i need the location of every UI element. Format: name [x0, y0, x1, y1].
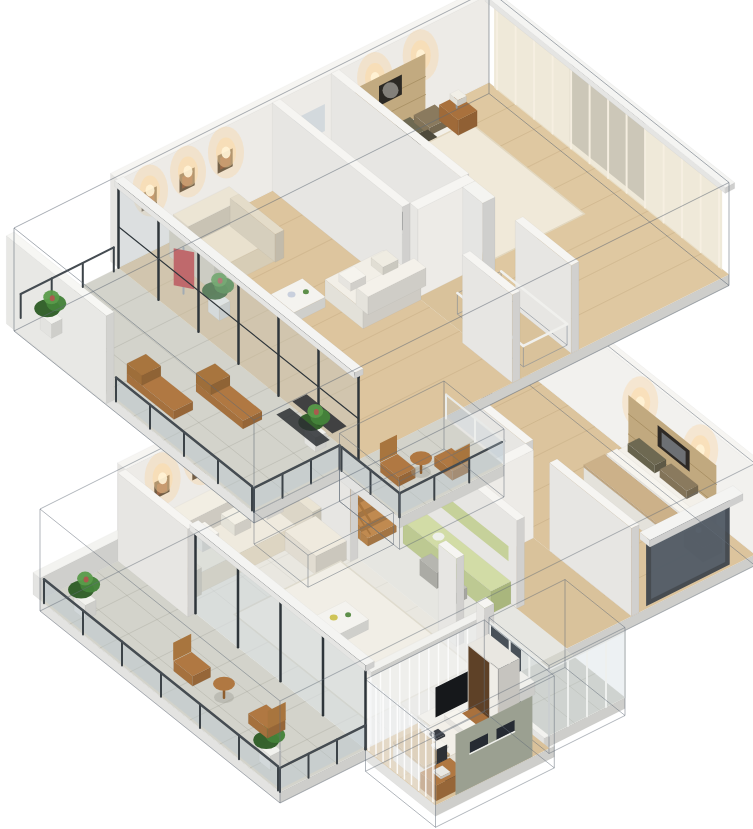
wall-light	[146, 185, 155, 197]
table-deco-plant	[345, 612, 351, 617]
uf-loveseat-arm	[275, 230, 284, 262]
kitchen-sink	[433, 533, 445, 541]
uf-wall-hall-bedroom	[571, 262, 579, 354]
uf-balcony-west-wall	[106, 312, 114, 404]
wall-light	[184, 166, 193, 178]
plant-bloom	[50, 295, 55, 301]
round-table-top	[410, 451, 432, 465]
wall-light	[158, 472, 167, 484]
lf-wall-kitchen-bath	[517, 517, 525, 609]
uf-wall-living-hall	[512, 291, 520, 383]
wall-light	[222, 147, 231, 159]
plant-bloom	[314, 409, 319, 415]
lf-wall-corridor-bedroom	[632, 525, 640, 617]
table-deco-plant	[303, 289, 309, 294]
floorplan-3d-render	[0, 0, 753, 829]
art-palm-motif	[383, 82, 399, 98]
plant-bloom	[84, 577, 89, 583]
round-table-top	[213, 677, 235, 691]
table-deco-flowers	[288, 292, 296, 298]
table-deco-flowers	[330, 615, 338, 621]
floorplan-svg	[0, 0, 753, 829]
